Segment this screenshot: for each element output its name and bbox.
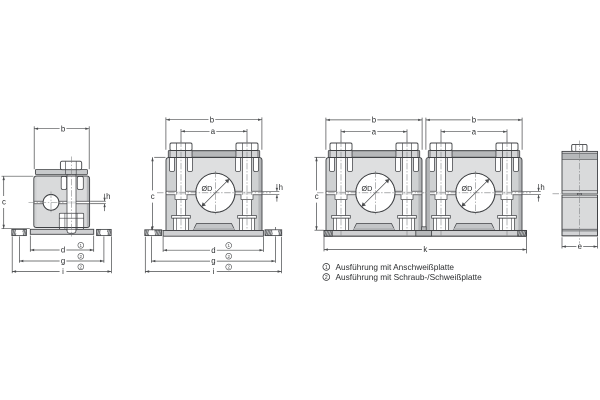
svg-text:c: c: [315, 192, 319, 201]
svg-text:a: a: [372, 127, 377, 136]
svg-text:c: c: [2, 198, 6, 207]
svg-text:d: d: [61, 246, 65, 255]
svg-text:d: d: [211, 246, 215, 255]
svg-text:g: g: [211, 257, 215, 266]
svg-text:h: h: [106, 192, 110, 201]
svg-text:i: i: [62, 267, 64, 276]
svg-text:ØD: ØD: [362, 184, 373, 193]
svg-text:Ausführung mit Anschweißplatte: Ausführung mit Anschweißplatte: [336, 262, 455, 272]
svg-text:ØD: ØD: [202, 184, 213, 193]
svg-text:g: g: [61, 257, 65, 266]
svg-text:h: h: [279, 183, 283, 192]
svg-text:a: a: [472, 127, 477, 136]
svg-text:e: e: [578, 242, 582, 251]
svg-text:ØD: ØD: [462, 184, 473, 193]
svg-text:Ausführung mit Schraub-/Schwei: Ausführung mit Schraub-/Schweißplatte: [336, 272, 483, 282]
svg-text:b: b: [61, 124, 66, 133]
svg-text:a: a: [211, 127, 216, 136]
svg-text:b: b: [372, 116, 377, 125]
svg-text:b: b: [472, 116, 477, 125]
svg-text:1: 1: [325, 265, 328, 271]
svg-text:2: 2: [325, 275, 328, 281]
svg-text:c: c: [151, 192, 155, 201]
svg-text:i: i: [213, 267, 215, 276]
svg-text:b: b: [210, 115, 215, 124]
svg-text:h: h: [540, 183, 544, 192]
svg-text:k: k: [423, 245, 427, 254]
